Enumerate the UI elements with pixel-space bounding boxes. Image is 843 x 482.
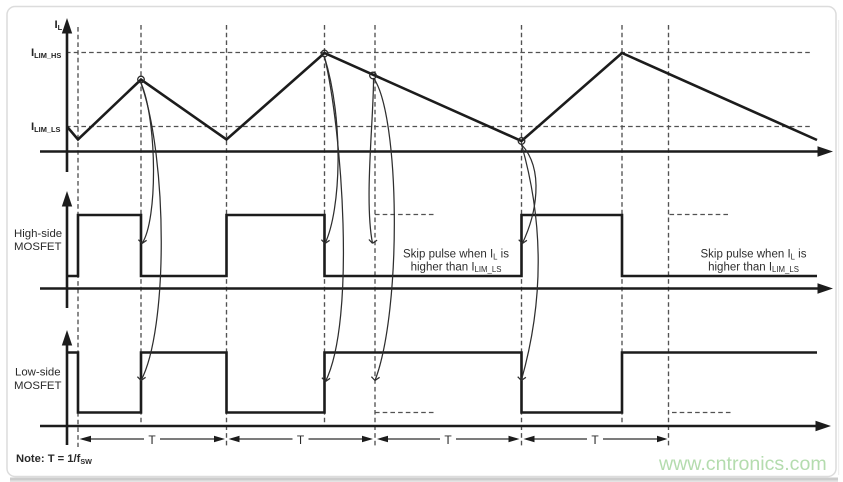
svg-text:T: T [297, 433, 305, 447]
svg-text:Low-side: Low-side [15, 367, 61, 379]
svg-text:T: T [444, 433, 452, 447]
svg-text:MOSFET: MOSFET [14, 380, 62, 392]
svg-text:MOSFET: MOSFET [14, 241, 62, 253]
svg-text:High-side: High-side [14, 228, 62, 240]
svg-text:T: T [148, 433, 156, 447]
svg-text:T: T [591, 433, 599, 447]
svg-text:www.cntronics.com: www.cntronics.com [658, 453, 827, 475]
